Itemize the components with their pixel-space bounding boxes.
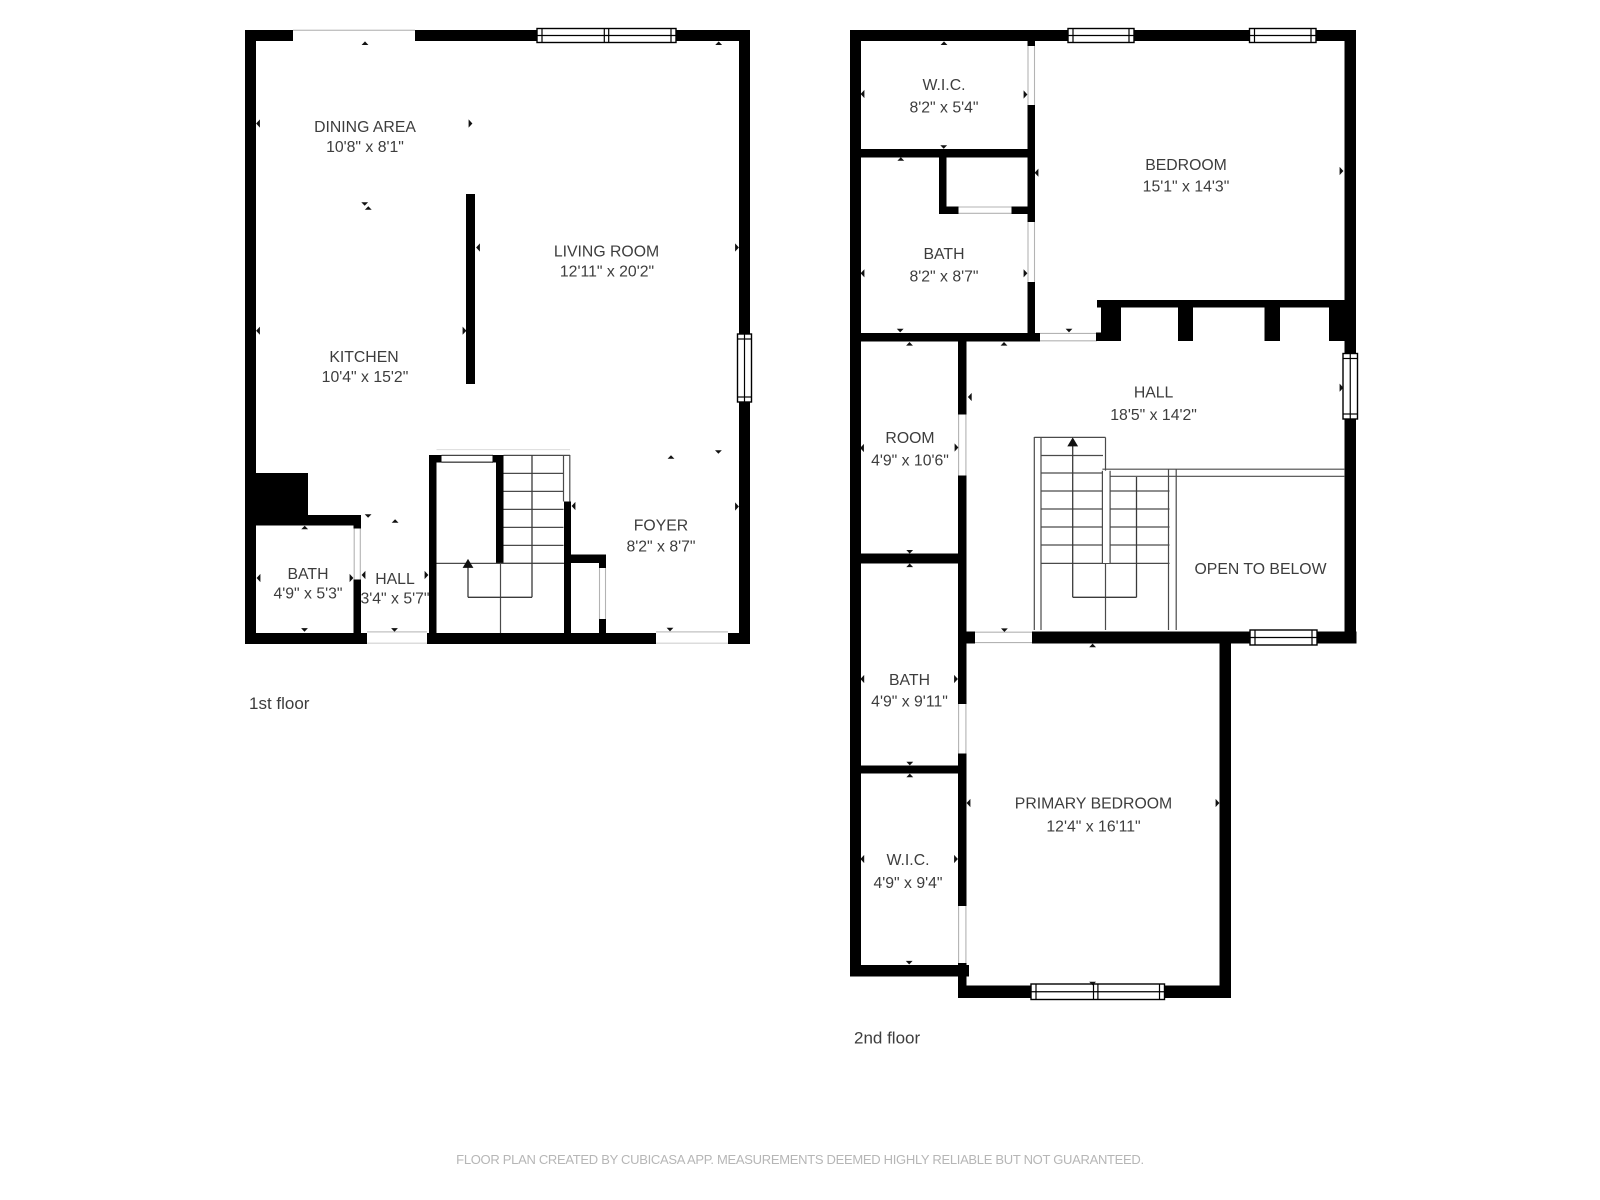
svg-text:BATH: BATH: [924, 246, 965, 263]
svg-text:18'5" x 14'2": 18'5" x 14'2": [1110, 407, 1197, 424]
svg-text:ROOM: ROOM: [885, 430, 934, 447]
svg-text:8'2" x 5'4": 8'2" x 5'4": [909, 100, 978, 117]
svg-text:12'4" x 16'11": 12'4" x 16'11": [1046, 819, 1140, 836]
svg-text:4'9" x 9'4": 4'9" x 9'4": [873, 875, 942, 892]
svg-text:DINING AREA: DINING AREA: [314, 119, 416, 136]
svg-text:4'9" x 10'6": 4'9" x 10'6": [871, 453, 949, 470]
svg-text:FLOOR PLAN CREATED BY CUBICASA: FLOOR PLAN CREATED BY CUBICASA APP. MEAS…: [456, 1152, 1144, 1167]
svg-text:2nd floor: 2nd floor: [854, 1029, 920, 1048]
svg-text:FOYER: FOYER: [634, 518, 688, 535]
svg-text:1st floor: 1st floor: [249, 694, 310, 713]
svg-text:HALL: HALL: [1134, 385, 1174, 402]
svg-text:OPEN TO BELOW: OPEN TO BELOW: [1195, 561, 1327, 578]
svg-text:BATH: BATH: [288, 566, 329, 583]
svg-text:4'9" x 9'11": 4'9" x 9'11": [871, 694, 948, 711]
svg-text:8'2" x 8'7": 8'2" x 8'7": [626, 539, 695, 556]
svg-text:10'4" x 15'2": 10'4" x 15'2": [322, 369, 409, 386]
svg-text:12'11" x 20'2": 12'11" x 20'2": [560, 264, 654, 281]
svg-text:3'4" x 5'7": 3'4" x 5'7": [360, 591, 429, 608]
svg-text:15'1" x 14'3": 15'1" x 14'3": [1143, 179, 1230, 196]
svg-text:8'2" x 8'7": 8'2" x 8'7": [909, 269, 978, 286]
svg-text:HALL: HALL: [375, 571, 415, 588]
svg-text:PRIMARY BEDROOM: PRIMARY BEDROOM: [1015, 796, 1172, 813]
svg-text:KITCHEN: KITCHEN: [329, 349, 398, 366]
svg-text:W.I.C.: W.I.C.: [886, 852, 929, 869]
svg-text:BEDROOM: BEDROOM: [1145, 157, 1227, 174]
svg-text:10'8" x 8'1": 10'8" x 8'1": [326, 139, 404, 156]
svg-text:W.I.C.: W.I.C.: [922, 77, 965, 94]
svg-text:4'9" x 5'3": 4'9" x 5'3": [273, 586, 342, 603]
svg-text:BATH: BATH: [889, 672, 930, 689]
svg-text:LIVING ROOM: LIVING ROOM: [554, 244, 659, 261]
